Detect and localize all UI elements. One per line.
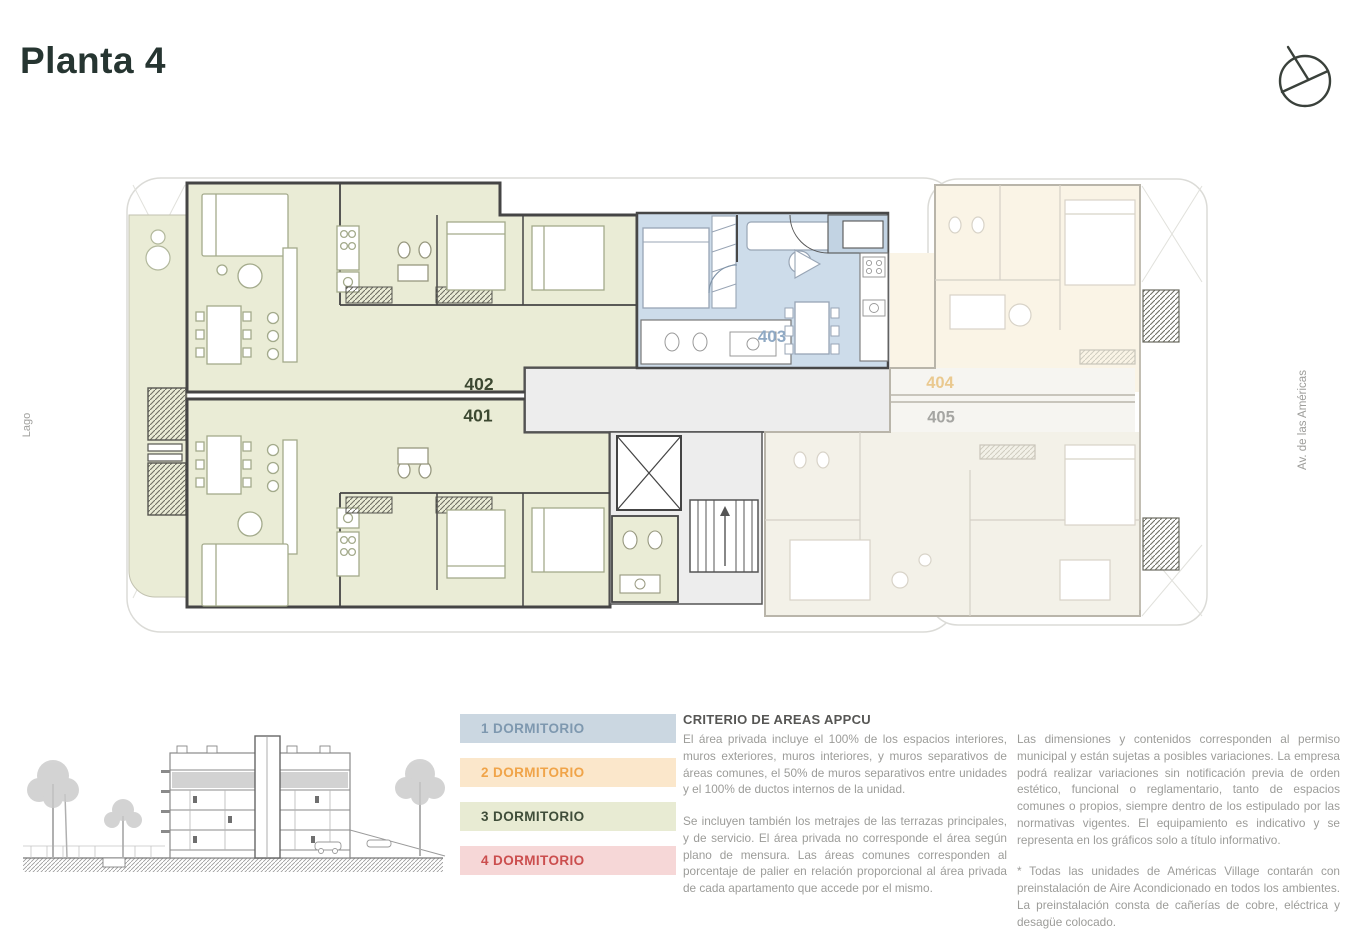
legend-item-3-dormitorio: 3 DORMITORIO (460, 802, 676, 831)
planter (1143, 290, 1179, 342)
criteria-paragraph-2: Se incluyen también los metrajes de las … (683, 813, 1007, 897)
ground (23, 858, 443, 872)
planter (1143, 518, 1179, 570)
terrace-strip (129, 215, 187, 597)
unit-402-label: 402 (464, 374, 493, 394)
avenue-label: Av. de las Américas (1297, 370, 1309, 470)
planter (148, 388, 186, 440)
unit-401-label: 401 (463, 406, 492, 426)
building-body (161, 736, 350, 858)
north-arrow-icon (1252, 28, 1347, 123)
unit-404-label: 404 (926, 374, 954, 392)
legend: 1 DORMITORIO 2 DORMITORIO 3 DORMITORIO 4… (460, 714, 676, 890)
elevator-shaft (617, 436, 681, 510)
criteria-title: CRITERIO DE AREAS APPCU (683, 712, 1007, 727)
bed (643, 228, 709, 308)
criteria-notes: CRITERIO DE AREAS APPCU El área privada … (683, 712, 1007, 912)
dining-table (795, 302, 829, 354)
bathroom-401-service (612, 516, 678, 602)
criteria-paragraph-1: El área privada incluye el 100% de los e… (683, 731, 1007, 798)
legend-item-label: 1 DORMITORIO (481, 721, 585, 736)
stair-tower (255, 736, 280, 858)
legend-item-label: 2 DORMITORIO (481, 765, 585, 780)
disclaimer-paragraph-1: Las dimensiones y contenidos corresponde… (1017, 731, 1340, 848)
fence (23, 846, 165, 858)
disclaimer-notes: Las dimensiones y contenidos corresponde… (1017, 731, 1340, 945)
floor-plan: 402 401 403 404 405 Lago Av. de las Amér… (0, 150, 1350, 670)
unit-405-label: 405 (927, 409, 955, 427)
planter (148, 463, 186, 515)
staircase (690, 500, 758, 572)
unit-403-label: 403 (758, 327, 786, 346)
building-section-drawing (15, 698, 450, 888)
lago-label: Lago (21, 413, 33, 437)
wardrobe (712, 216, 736, 308)
legend-item-label: 3 DORMITORIO (481, 809, 585, 824)
page-title: Planta 4 (20, 40, 166, 82)
disclaimer-paragraph-2: * Todas las unidades de Américas Village… (1017, 863, 1340, 930)
legend-item-2-dormitorio: 2 DORMITORIO (460, 758, 676, 787)
legend-item-1-dormitorio: 1 DORMITORIO (460, 714, 676, 743)
legend-item-4-dormitorio: 4 DORMITORIO (460, 846, 676, 875)
legend-item-label: 4 DORMITORIO (481, 853, 585, 868)
